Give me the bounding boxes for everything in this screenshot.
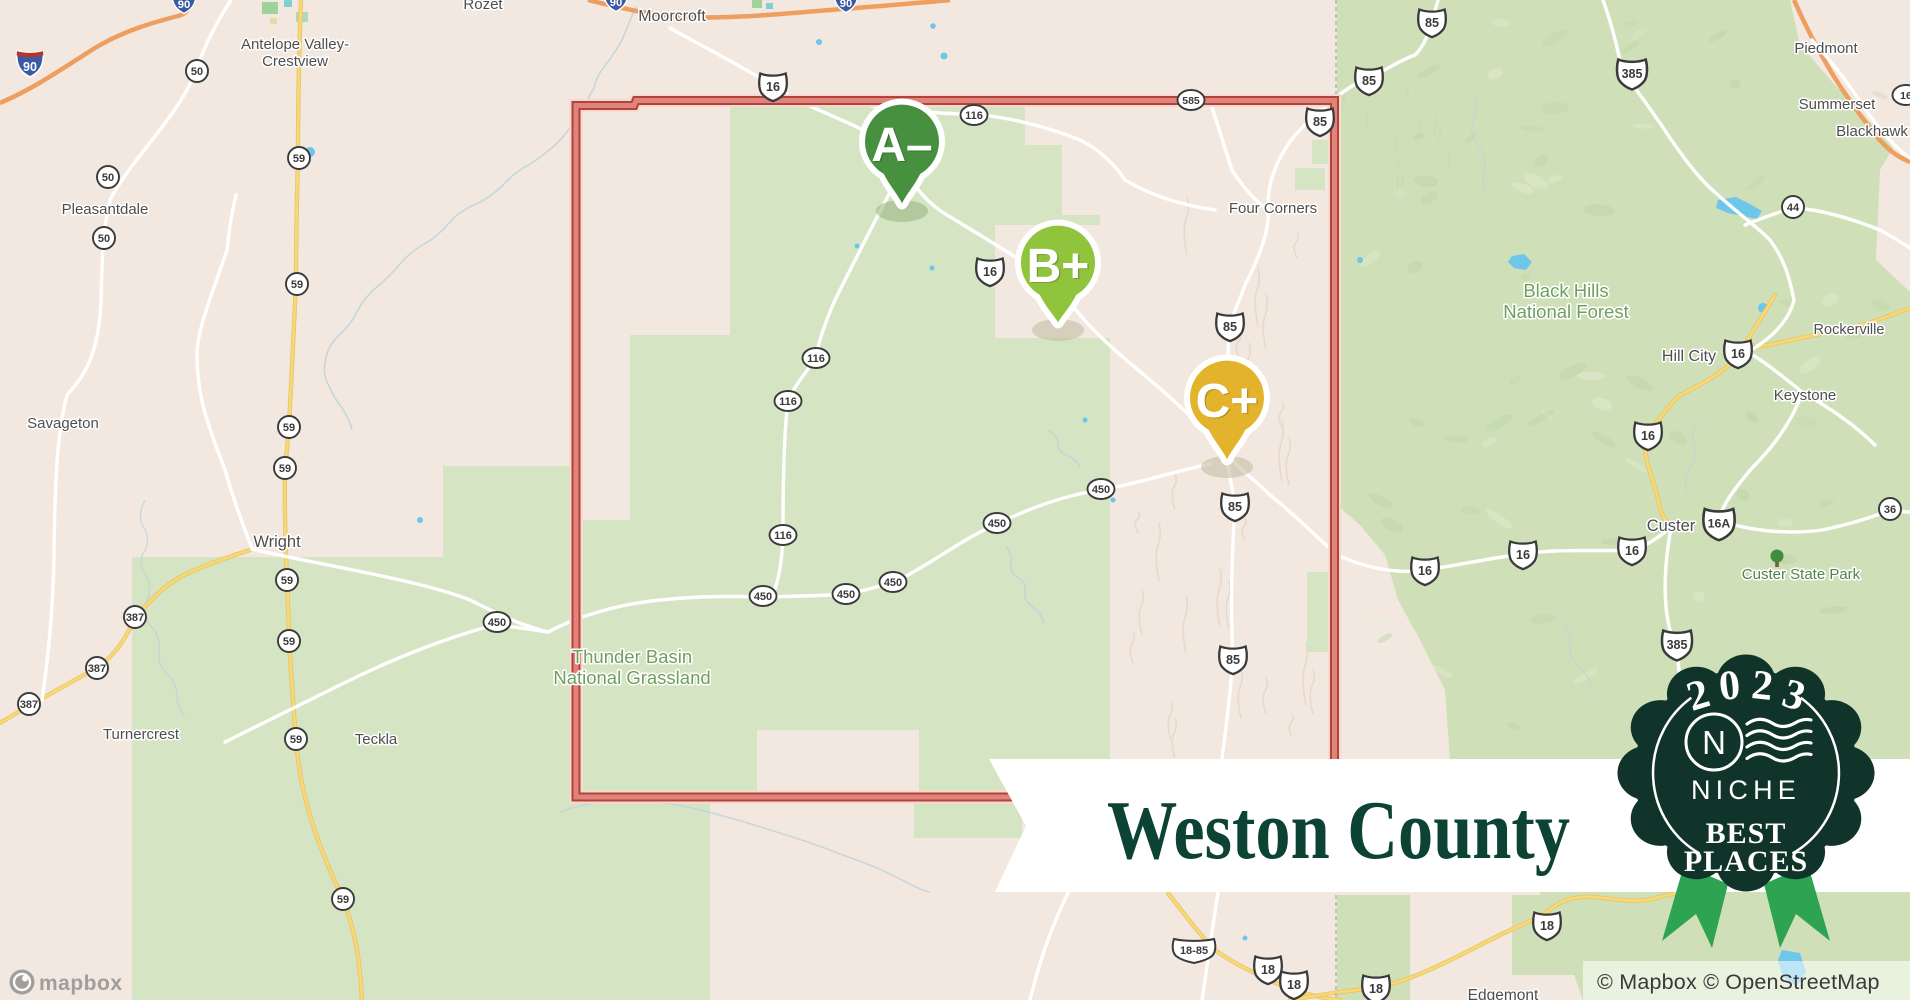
svg-text:85: 85: [1313, 115, 1327, 129]
svg-text:450: 450: [884, 577, 902, 589]
svg-text:36: 36: [1884, 504, 1896, 516]
svg-text:116: 116: [965, 110, 983, 122]
svg-text:18: 18: [1287, 978, 1301, 992]
svg-text:B+: B+: [1027, 240, 1090, 293]
svg-text:387: 387: [20, 699, 38, 711]
svg-text:Rockerville: Rockerville: [1814, 322, 1885, 338]
svg-text:59: 59: [337, 894, 349, 906]
svg-text:Moorcroft: Moorcroft: [638, 8, 706, 25]
svg-text:Keystone: Keystone: [1774, 387, 1837, 404]
svg-text:Edgemont: Edgemont: [1468, 987, 1539, 1000]
svg-text:Wright: Wright: [253, 533, 301, 551]
svg-text:85: 85: [1223, 320, 1237, 334]
svg-text:387: 387: [126, 612, 144, 624]
svg-text:59: 59: [291, 279, 303, 291]
svg-text:59: 59: [281, 575, 293, 587]
svg-text:85: 85: [1425, 16, 1439, 30]
svg-text:85: 85: [1228, 500, 1242, 514]
svg-text:16: 16: [983, 265, 997, 279]
svg-text:16: 16: [1641, 429, 1655, 443]
svg-text:18: 18: [1369, 982, 1383, 996]
svg-text:Custer State Park: Custer State Park: [1742, 566, 1861, 583]
svg-text:116: 116: [807, 353, 825, 365]
svg-text:Teckla: Teckla: [355, 731, 398, 748]
svg-text:Thunder BasinNational Grasslan: Thunder BasinNational Grassland: [553, 646, 710, 688]
svg-text:N: N: [1702, 724, 1726, 761]
svg-text:C+: C+: [1196, 375, 1259, 428]
svg-text:59: 59: [283, 636, 295, 648]
svg-text:Turnercrest: Turnercrest: [103, 726, 180, 743]
svg-text:18-85: 18-85: [1180, 945, 1208, 957]
svg-text:Piedmont: Piedmont: [1794, 40, 1858, 57]
svg-text:116: 116: [774, 530, 792, 542]
svg-text:59: 59: [279, 463, 291, 475]
svg-text:mapbox: mapbox: [39, 972, 123, 995]
svg-text:90: 90: [840, 0, 853, 10]
svg-text:50: 50: [102, 172, 114, 184]
svg-text:59: 59: [283, 422, 295, 434]
svg-text:50: 50: [191, 66, 203, 78]
svg-text:Blackhawk: Blackhawk: [1836, 123, 1908, 140]
svg-text:© Mapbox © OpenStreetMap: © Mapbox © OpenStreetMap: [1597, 970, 1880, 994]
svg-text:PLACES: PLACES: [1684, 845, 1808, 878]
svg-text:385: 385: [1622, 67, 1643, 81]
svg-text:50: 50: [98, 233, 110, 245]
svg-text:16: 16: [1731, 347, 1745, 361]
svg-text:16: 16: [1900, 90, 1910, 102]
svg-text:385: 385: [1667, 638, 1688, 652]
svg-text:Summerset: Summerset: [1799, 96, 1877, 113]
svg-text:85: 85: [1226, 653, 1240, 667]
svg-text:16: 16: [1418, 564, 1432, 578]
svg-text:116: 116: [779, 396, 797, 408]
svg-text:16: 16: [766, 80, 780, 94]
svg-text:85: 85: [1362, 74, 1376, 88]
svg-text:450: 450: [488, 617, 506, 629]
svg-text:NICHE: NICHE: [1691, 775, 1801, 805]
svg-text:450: 450: [837, 589, 855, 601]
svg-text:Custer: Custer: [1647, 517, 1696, 535]
svg-text:Savageton: Savageton: [27, 415, 99, 432]
svg-text:585: 585: [1182, 95, 1200, 107]
svg-text:16: 16: [1516, 548, 1530, 562]
svg-text:59: 59: [293, 153, 305, 165]
svg-text:Weston County: Weston County: [1107, 784, 1570, 877]
svg-text:90: 90: [178, 0, 191, 11]
svg-text:450: 450: [754, 591, 772, 603]
svg-text:16: 16: [1625, 544, 1639, 558]
svg-text:90: 90: [610, 0, 623, 9]
svg-text:18: 18: [1261, 963, 1275, 977]
svg-text:90: 90: [23, 60, 37, 74]
svg-text:18: 18: [1540, 919, 1554, 933]
svg-text:Hill City: Hill City: [1662, 348, 1716, 365]
svg-text:Pleasantdale: Pleasantdale: [62, 201, 149, 218]
svg-text:44: 44: [1787, 202, 1800, 214]
svg-text:A–: A–: [871, 119, 932, 172]
svg-text:450: 450: [988, 518, 1006, 530]
svg-text:59: 59: [290, 734, 302, 746]
svg-text:387: 387: [88, 663, 106, 675]
svg-text:450: 450: [1092, 484, 1110, 496]
svg-text:Four Corners: Four Corners: [1229, 200, 1317, 217]
svg-text:16A: 16A: [1708, 517, 1731, 531]
svg-text:Rozet: Rozet: [463, 0, 503, 13]
